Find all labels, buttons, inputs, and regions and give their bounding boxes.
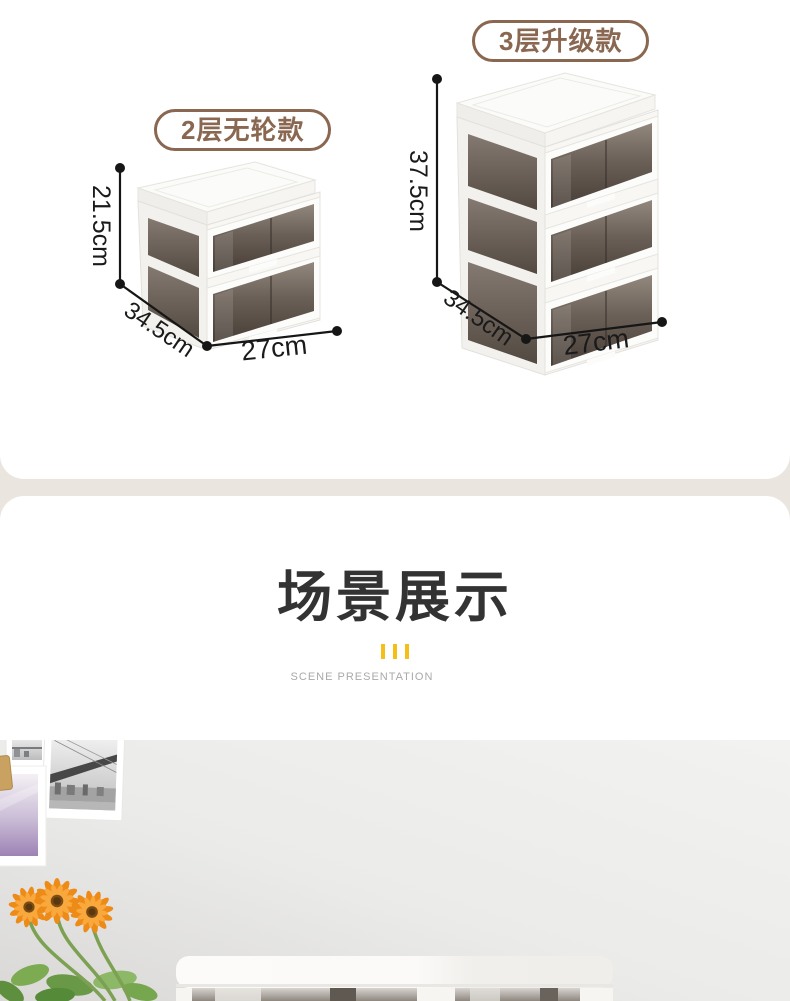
white-drawer-cabinet — [176, 956, 613, 1001]
product-image-3tier: 37.5cm 34.5cm 27cm — [390, 50, 690, 380]
scene-photo — [0, 740, 790, 1001]
scene-subtitle: SCENE PRESENTATION — [0, 671, 724, 683]
divider-bar — [381, 644, 385, 659]
width-label-2tier: 27cm — [240, 330, 309, 367]
bridge-picture-frame — [42, 740, 125, 821]
scene-title: 场景展示 — [0, 552, 790, 632]
divider-bar — [393, 644, 397, 659]
height-label-2tier: 21.5cm — [87, 185, 115, 267]
product-image-2tier: 21.5cm 34.5cm 27cm — [75, 150, 355, 375]
scene-divider-bars — [0, 644, 790, 659]
divider-bar — [405, 644, 409, 659]
small-picture-frame — [6, 740, 48, 766]
height-label-3tier: 37.5cm — [404, 150, 432, 232]
product-detail-page: 2层无轮款 3层升级款 — [0, 0, 790, 1001]
badge-2tier: 2层无轮款 — [154, 109, 331, 151]
size-section-card: 2层无轮款 3层升级款 — [0, 0, 790, 479]
